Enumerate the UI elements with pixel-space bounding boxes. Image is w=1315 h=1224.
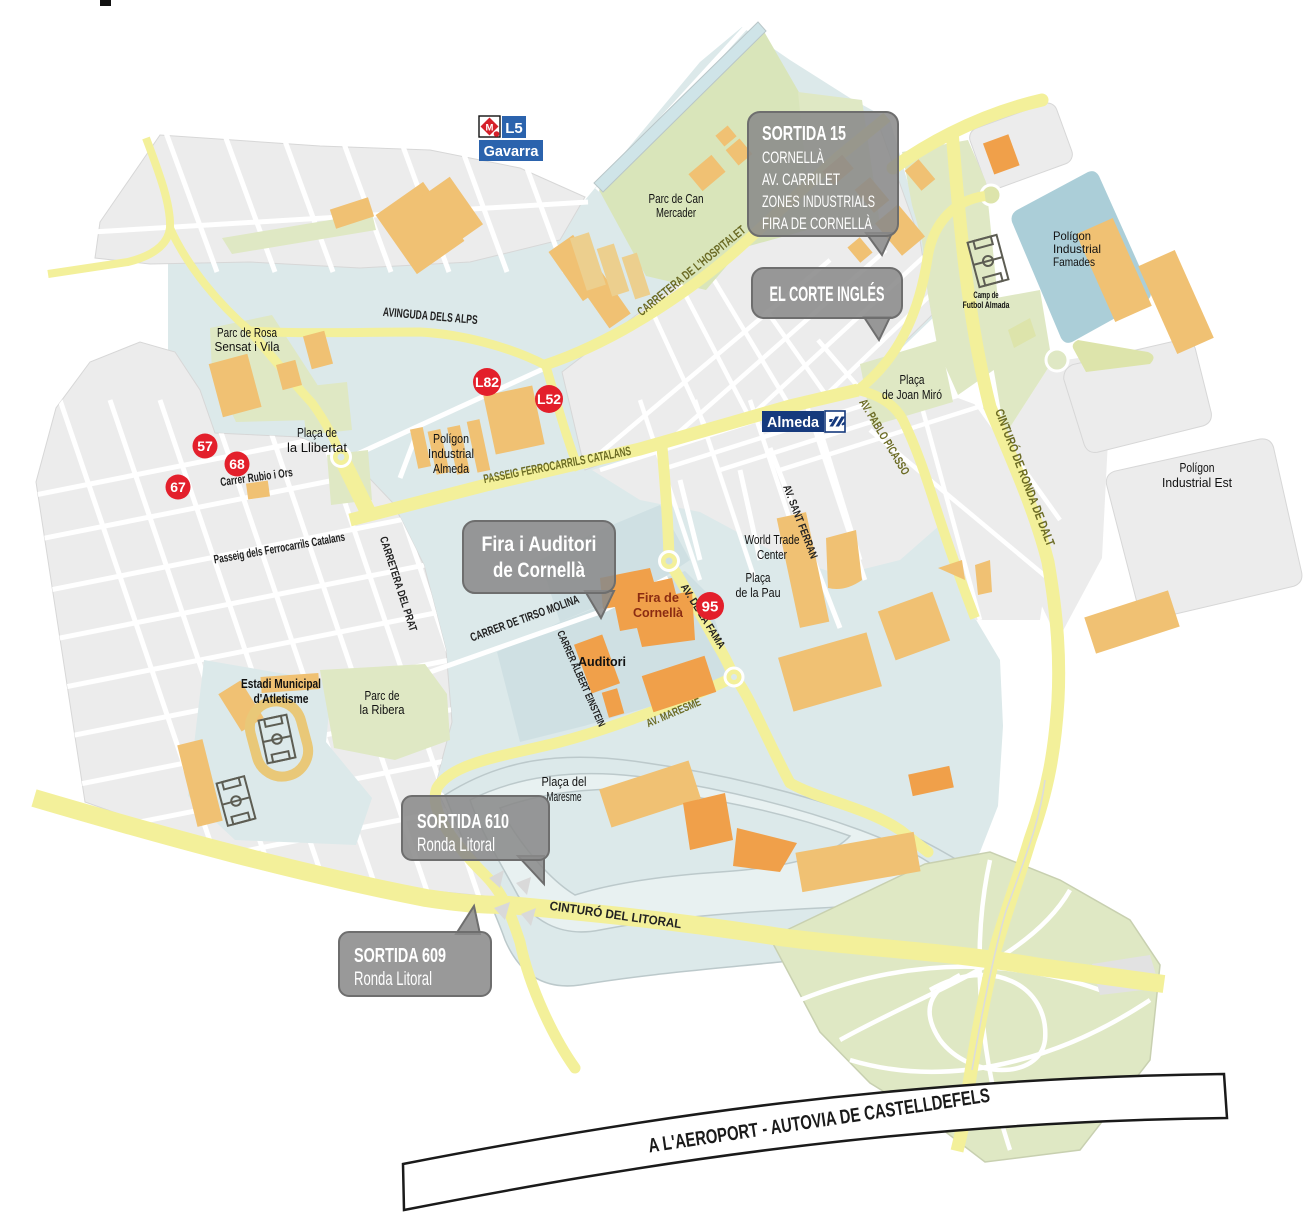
svg-text:Plaça de: Plaça de	[297, 426, 337, 440]
svg-text:Famades: Famades	[1053, 255, 1095, 269]
svg-text:Plaça: Plaça	[900, 373, 925, 387]
svg-text:de la Pau: de la Pau	[736, 586, 781, 600]
svg-text:Parc de Rosa: Parc de Rosa	[217, 326, 277, 340]
svg-text:Fira i Auditori: Fira i Auditori	[482, 533, 597, 556]
svg-text:L82: L82	[475, 374, 499, 390]
svg-text:Sensat i Vila: Sensat i Vila	[215, 340, 280, 354]
svg-text:Futbol Almada: Futbol Almada	[963, 300, 1011, 310]
svg-text:95: 95	[702, 598, 719, 615]
svg-text:de Cornellà: de Cornellà	[493, 559, 585, 582]
svg-text:Maresme: Maresme	[547, 790, 582, 804]
svg-text:ZONES INDUSTRIALS: ZONES INDUSTRIALS	[762, 192, 875, 211]
svg-text:la Llibertat: la Llibertat	[287, 441, 348, 455]
svg-text:Estadi Municipal: Estadi Municipal	[241, 677, 321, 691]
svg-text:World Trade: World Trade	[745, 533, 800, 547]
svg-text:67: 67	[170, 479, 186, 495]
svg-text:SORTIDA 15: SORTIDA 15	[762, 123, 846, 145]
svg-text:de Joan Miró: de Joan Miró	[882, 388, 942, 402]
svg-text:Parc de Can: Parc de Can	[649, 192, 704, 206]
svg-text:57: 57	[197, 438, 213, 454]
svg-text:Almeda: Almeda	[433, 462, 469, 476]
svg-text:SORTIDA 609: SORTIDA 609	[354, 945, 446, 967]
svg-text:Industrial: Industrial	[1053, 242, 1101, 256]
svg-text:Center: Center	[757, 548, 787, 562]
svg-text:Cornellà: Cornellà	[633, 605, 684, 620]
svg-text:CORNELLÀ: CORNELLÀ	[762, 148, 824, 167]
svg-text:L52: L52	[537, 391, 561, 407]
svg-text:Ronda Litoral: Ronda Litoral	[417, 835, 495, 856]
svg-text:Mercader: Mercader	[656, 206, 696, 220]
svg-text:M: M	[486, 123, 494, 134]
svg-text:Camp de: Camp de	[973, 290, 998, 300]
svg-text:Plaça: Plaça	[746, 571, 771, 585]
svg-text:L5: L5	[505, 120, 523, 137]
svg-text:Auditori: Auditori	[578, 654, 626, 669]
svg-text:SORTIDA 610: SORTIDA 610	[417, 811, 509, 833]
svg-text:Ronda Litoral: Ronda Litoral	[354, 969, 432, 990]
svg-text:Industrial: Industrial	[428, 447, 474, 461]
svg-text:d'Atletisme: d'Atletisme	[254, 692, 309, 706]
svg-text:Fira de: Fira de	[637, 590, 679, 605]
svg-text:Parc de: Parc de	[365, 689, 400, 703]
svg-text:Gavarra: Gavarra	[484, 144, 540, 160]
svg-text:AV. CARRILET: AV. CARRILET	[762, 170, 840, 189]
svg-text:Polígon: Polígon	[433, 432, 469, 446]
svg-text:EL CORTE INGLÉS: EL CORTE INGLÉS	[770, 283, 885, 306]
svg-text:Polígon: Polígon	[1180, 461, 1215, 475]
svg-text:Almeda: Almeda	[767, 414, 820, 431]
svg-text:Plaça del: Plaça del	[542, 775, 587, 789]
svg-text:FIRA DE CORNELLÀ: FIRA DE CORNELLÀ	[762, 214, 872, 233]
svg-text:Industrial Est: Industrial Est	[1162, 476, 1232, 490]
svg-text:la Ribera: la Ribera	[360, 703, 405, 717]
svg-text:68: 68	[229, 456, 245, 472]
svg-text:Polígon: Polígon	[1053, 229, 1091, 243]
